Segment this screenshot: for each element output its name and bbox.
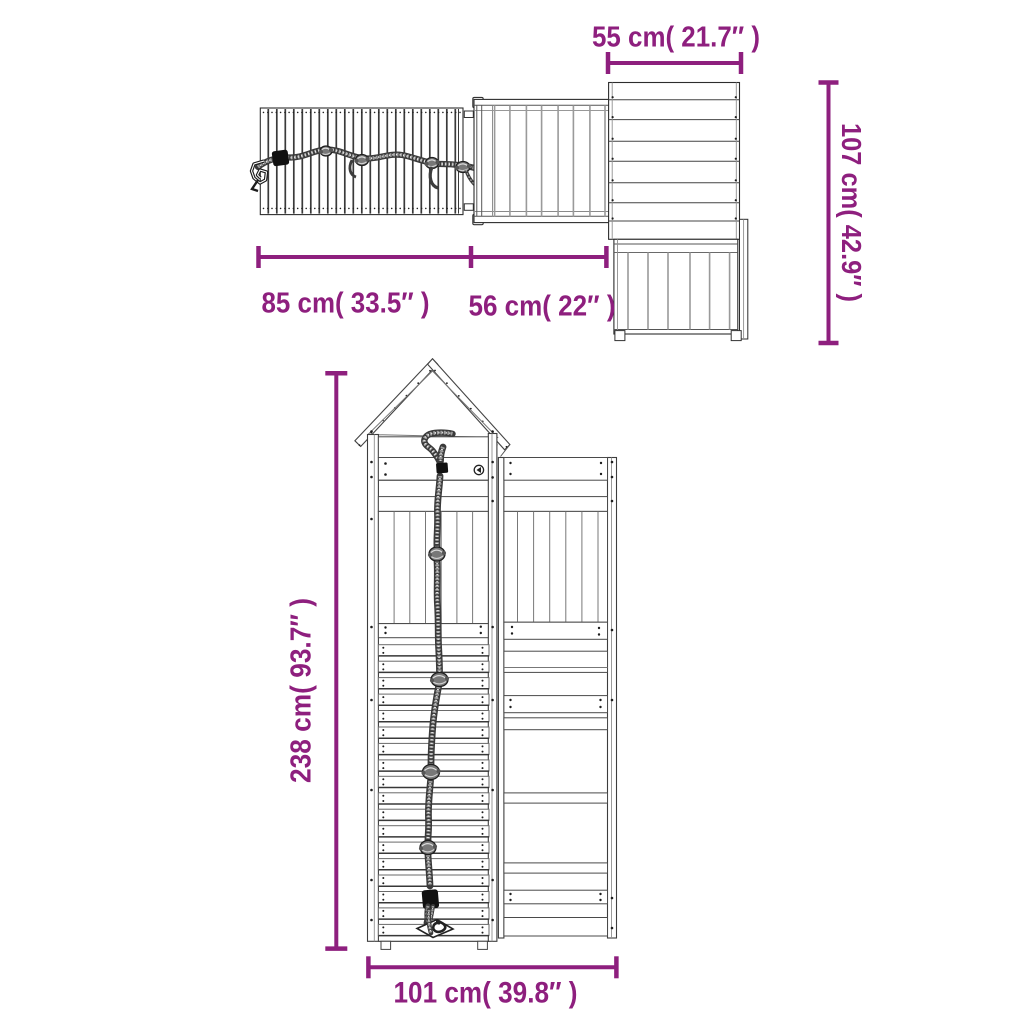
svg-text:238 cm( 93.7″ ): 238 cm( 93.7″ ) — [286, 598, 318, 783]
svg-text:85 cm( 33.5″ ): 85 cm( 33.5″ ) — [262, 288, 430, 320]
svg-text:101 cm( 39.8″ ): 101 cm( 39.8″ ) — [394, 977, 578, 1010]
svg-text:107 cm( 42.9″ ): 107 cm( 42.9″ ) — [836, 123, 867, 302]
svg-text:56 cm( 22″ ): 56 cm( 22″ ) — [469, 291, 616, 323]
svg-text:55 cm( 21.7″ ): 55 cm( 21.7″ ) — [592, 22, 760, 54]
